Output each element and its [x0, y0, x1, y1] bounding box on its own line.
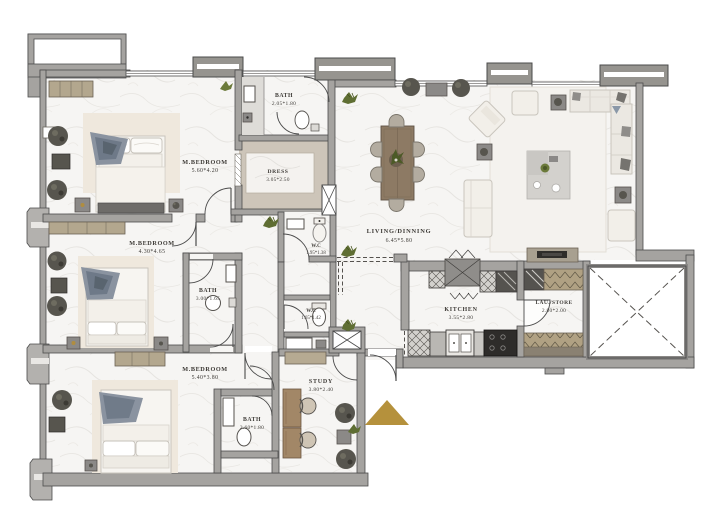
- svg-text:BATH: BATH: [275, 93, 293, 99]
- svg-text:W.C: W.C: [306, 309, 316, 314]
- svg-text:M.BEDROOM: M.BEDROOM: [129, 240, 174, 247]
- svg-text:BATH: BATH: [243, 417, 261, 423]
- svg-text:3.05*2.50: 3.05*2.50: [266, 177, 290, 183]
- svg-text:W.C: W.C: [311, 244, 321, 249]
- svg-text:3.00*1.65: 3.00*1.65: [196, 296, 220, 302]
- svg-text:BATH: BATH: [199, 288, 217, 294]
- svg-text:4.30*4.65: 4.30*4.65: [139, 249, 166, 255]
- svg-text:M.BEDROOM: M.BEDROOM: [182, 159, 227, 166]
- svg-text:LIVING/DINNING: LIVING/DINNING: [367, 228, 432, 235]
- svg-text:1.65*1.42: 1.65*1.42: [301, 316, 321, 321]
- svg-text:KITCHEN: KITCHEN: [444, 307, 477, 313]
- svg-text:5.40*3.80: 5.40*3.80: [192, 375, 219, 381]
- svg-text:LAU./STORE: LAU./STORE: [535, 300, 572, 306]
- svg-text:2.05*1.80: 2.05*1.80: [272, 101, 296, 107]
- svg-text:STUDY: STUDY: [309, 379, 333, 385]
- svg-text:3.80*2.40: 3.80*2.40: [309, 387, 334, 393]
- svg-text:2.80*2.00: 2.80*2.00: [542, 308, 566, 314]
- svg-text:6.45*5.80: 6.45*5.80: [386, 238, 413, 244]
- svg-text:3.55*2.80: 3.55*2.80: [449, 315, 474, 321]
- svg-text:M.BEDROOM: M.BEDROOM: [182, 366, 227, 373]
- svg-text:1.95*1.38: 1.95*1.38: [306, 251, 326, 256]
- svg-text:DRESS: DRESS: [267, 169, 288, 175]
- svg-text:2.60*1.80: 2.60*1.80: [240, 425, 264, 431]
- svg-text:5.60*4.20: 5.60*4.20: [192, 168, 219, 174]
